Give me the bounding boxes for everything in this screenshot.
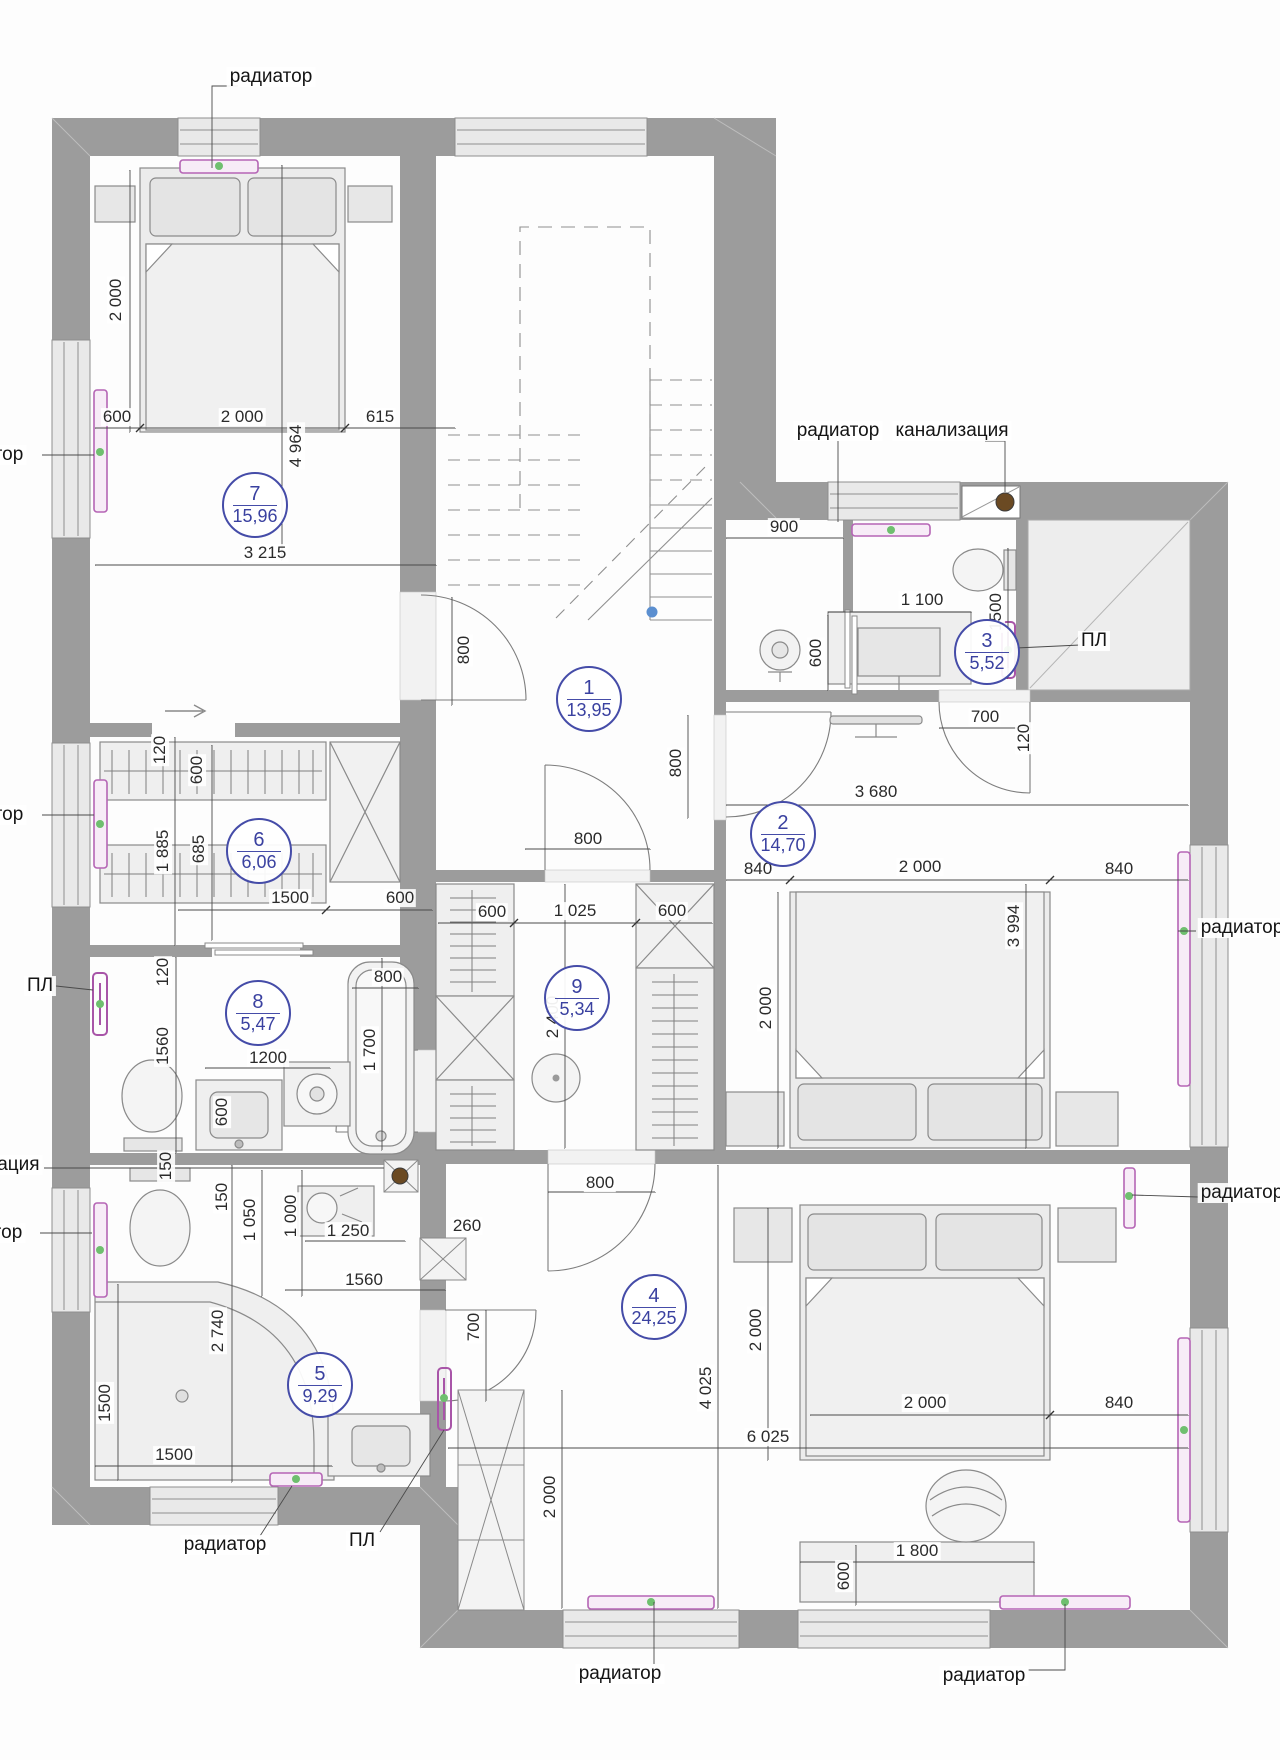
dimension-label: 120 (1015, 722, 1033, 754)
dimension-label: 150 (213, 1181, 231, 1213)
dimension-label: 600 (384, 889, 416, 907)
dimension-label: 800 (572, 830, 604, 848)
room-number: 6 (237, 829, 280, 852)
dimension-label: 1 250 (325, 1222, 372, 1240)
dimension-label: 700 (465, 1311, 483, 1343)
room-area: 5,52 (969, 653, 1004, 674)
dimension-label: 2 000 (219, 408, 266, 426)
dimension-label: 600 (188, 754, 206, 786)
dimension-label: 685 (190, 833, 208, 865)
room-area: 6,06 (241, 852, 276, 873)
dimension-label: 600 (656, 902, 688, 920)
duct-space (1028, 520, 1190, 690)
staircase (448, 227, 712, 620)
dimension-label: 1 050 (241, 1197, 259, 1244)
dimension-label: 1560 (343, 1271, 385, 1289)
floor-plan-drawing (0, 0, 1280, 1760)
annotation-label: радиатор (794, 421, 883, 441)
room-number: 3 (965, 630, 1008, 653)
dimension-label: 3 215 (242, 544, 289, 562)
dimension-label: 2 000 (107, 277, 125, 324)
room-area: 14,70 (760, 835, 805, 856)
dimension-label: 150 (157, 1150, 175, 1182)
room-number: 1 (567, 677, 610, 700)
dimension-label: 4 964 (287, 423, 305, 470)
dimension-label: 1200 (247, 1049, 289, 1067)
dimension-label: 800 (667, 747, 685, 779)
dimension-label: 3 994 (1005, 903, 1023, 950)
dimension-label: 600 (835, 1560, 853, 1592)
room-number: 4 (632, 1285, 675, 1308)
dimension-label: 1 100 (899, 591, 946, 609)
room-badge: 424,25 (621, 1274, 687, 1340)
room-badge: 715,96 (222, 472, 288, 538)
room-area: 5,34 (559, 999, 594, 1020)
dimension-label: 2 000 (902, 1394, 949, 1412)
dimension-label: 3 680 (853, 783, 900, 801)
room-area: 15,96 (232, 506, 277, 527)
annotation-label: радиатор (940, 1666, 1029, 1686)
annotation-label: ПЛ (346, 1531, 378, 1551)
dimension-label: 615 (364, 408, 396, 426)
dimension-label: 1 025 (552, 902, 599, 920)
dimension-label: 800 (455, 634, 473, 666)
annotation-label: радиатор (227, 67, 316, 87)
annotation-label: радиатор (0, 1223, 25, 1243)
dimension-label: 1500 (96, 1382, 114, 1424)
dimension-label: 1560 (154, 1025, 172, 1067)
room-area: 13,95 (566, 700, 611, 721)
annotation-label: канализация (0, 1155, 43, 1175)
dimension-label: 120 (151, 734, 169, 766)
dimension-label: 2 000 (747, 1307, 765, 1354)
annotation-label: радиатор (0, 445, 26, 465)
dimension-label: 6 025 (745, 1428, 792, 1446)
annotation-label: радиатор (576, 1664, 665, 1684)
annotation-label: радиатор (1198, 1183, 1280, 1203)
room-number: 2 (761, 812, 804, 835)
dimension-label: 2 000 (897, 858, 944, 876)
dimension-label: 260 (451, 1217, 483, 1235)
room-area: 24,25 (631, 1308, 676, 1329)
dimension-label: 1500 (153, 1446, 195, 1464)
room-number: 7 (233, 483, 276, 506)
sewer-niche (962, 486, 1020, 518)
dimension-label: 800 (372, 968, 404, 986)
room-number: 5 (298, 1363, 341, 1386)
floor-plan-page: 6002 0006152 0004 9643 2158001206001 885… (0, 0, 1280, 1760)
dimension-label: 2 740 (209, 1308, 227, 1355)
dimension-label: 1500 (269, 889, 311, 907)
annotation-label: радиатор (0, 805, 26, 825)
dimension-label: 1 700 (361, 1027, 379, 1074)
dimension-label: 1 885 (154, 828, 172, 875)
dimension-label: 2 000 (541, 1474, 559, 1521)
dimension-label: 1 000 (282, 1193, 300, 1240)
dimension-label: 600 (807, 637, 825, 669)
dimension-label: 600 (476, 903, 508, 921)
room-badge: 59,29 (287, 1352, 353, 1418)
room-number: 9 (555, 976, 598, 999)
dimension-label: 600 (101, 408, 133, 426)
dimension-label: 4 025 (697, 1365, 715, 1412)
dimension-label: 840 (1103, 1394, 1135, 1412)
room-badge: 214,70 (750, 801, 816, 867)
room-area: 5,47 (240, 1014, 275, 1035)
dimension-label: 900 (768, 518, 800, 536)
room-badge: 66,06 (226, 818, 292, 884)
dimension-label: 1 800 (894, 1542, 941, 1560)
room-badge: 85,47 (225, 980, 291, 1046)
annotation-label: ПЛ (24, 976, 56, 996)
dimension-label: 700 (969, 708, 1001, 726)
dimension-label: 120 (154, 956, 172, 988)
annotation-label: канализация (892, 421, 1011, 441)
room-area: 9,29 (302, 1386, 337, 1407)
dimension-label: 600 (213, 1096, 231, 1128)
room-number: 8 (236, 991, 279, 1014)
dimension-label: 2 000 (757, 985, 775, 1032)
room-badge: 35,52 (954, 619, 1020, 685)
dimension-label: 800 (584, 1174, 616, 1192)
annotation-label: радиатор (1198, 918, 1280, 938)
room-badge: 95,34 (544, 965, 610, 1031)
annotation-label: радиатор (181, 1535, 270, 1555)
room-badge: 113,95 (556, 666, 622, 732)
dimension-label: 840 (1103, 860, 1135, 878)
annotation-label: ПЛ (1078, 631, 1110, 651)
